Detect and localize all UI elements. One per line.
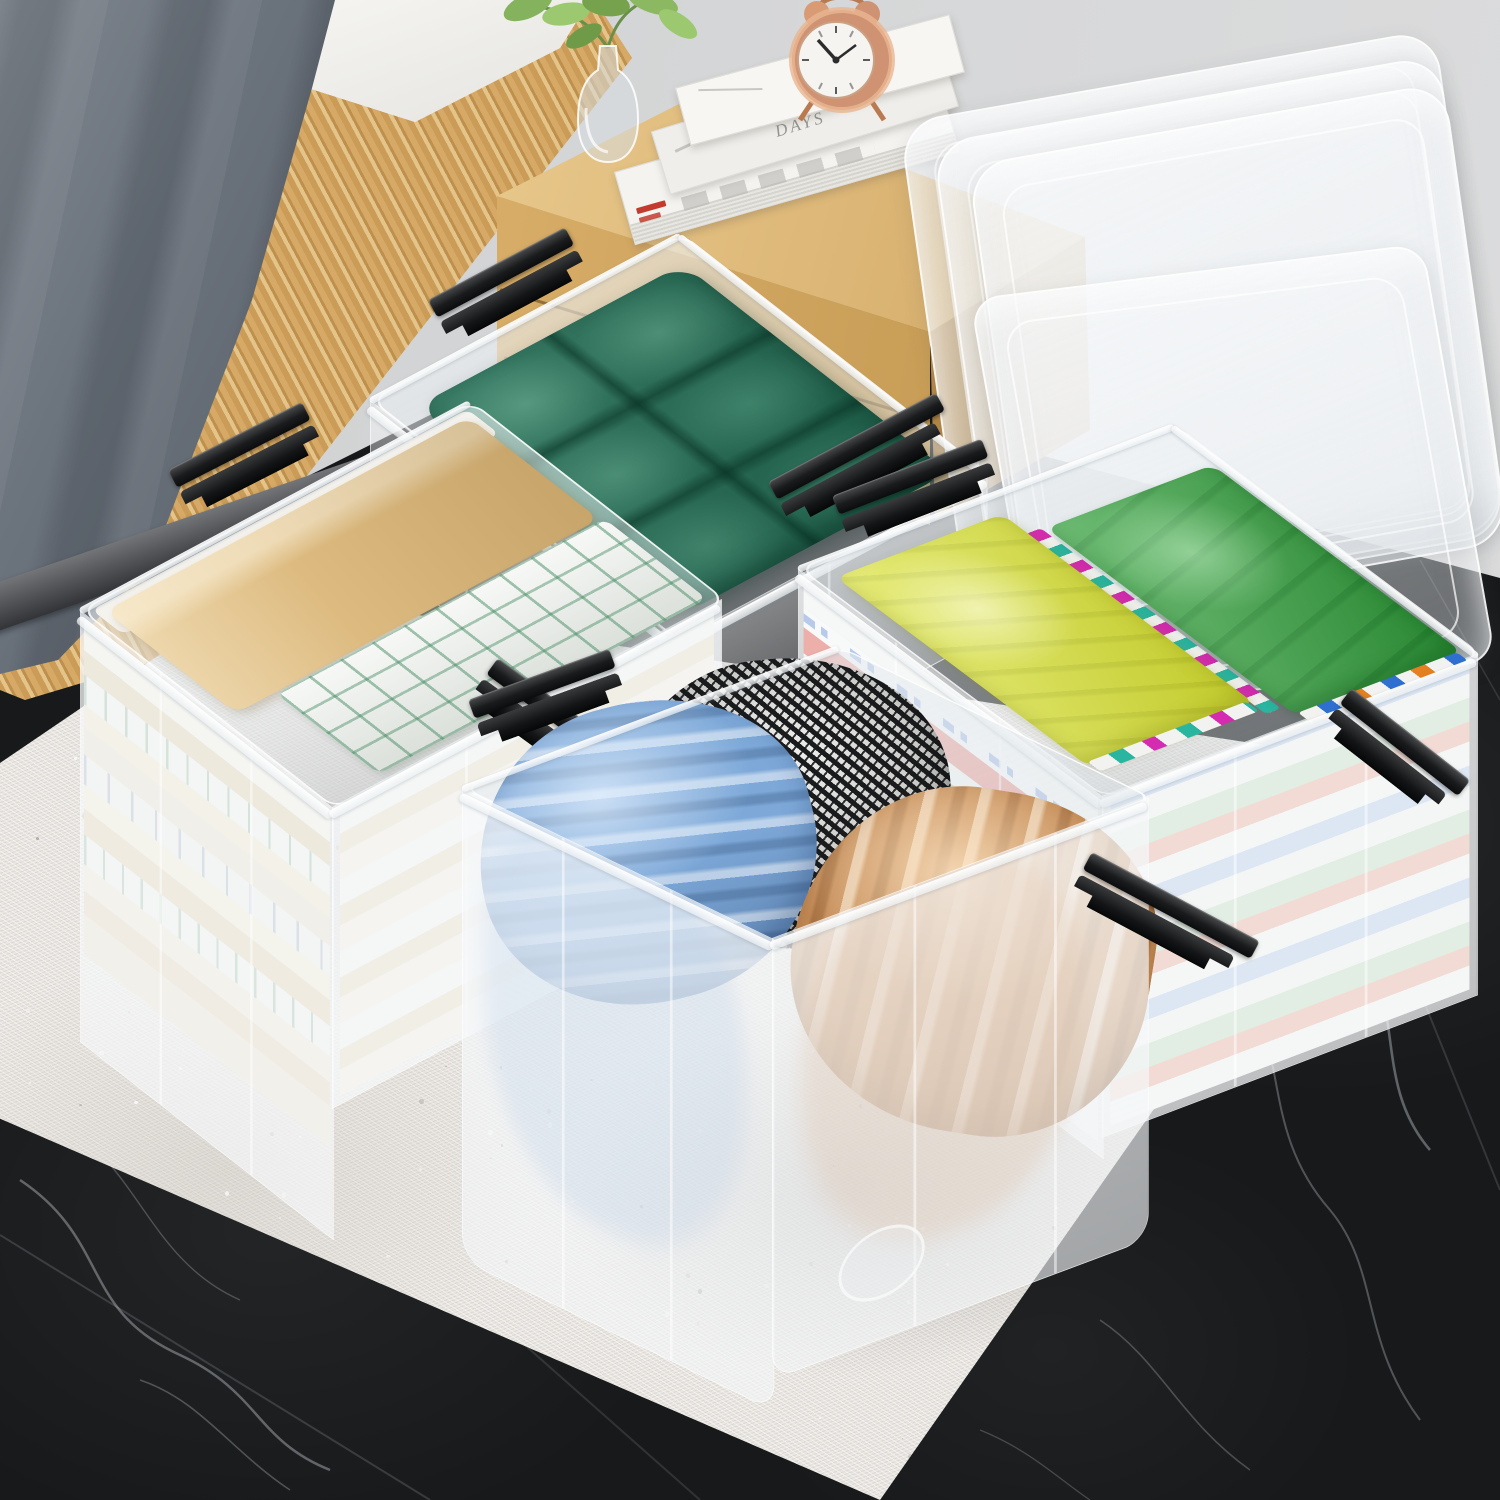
rug-speckle <box>386 1255 390 1259</box>
bedroom-storage-bins-photo: DAYS <box>0 0 1500 1500</box>
book-sketch-line2 <box>698 88 762 91</box>
rug-speckle <box>419 1168 422 1171</box>
book-accent-mark <box>636 200 666 214</box>
binC-ridge3 <box>1234 746 1237 1087</box>
binB-ridge2 <box>250 744 252 1176</box>
clock-handle <box>820 0 864 6</box>
binD-ridge2 <box>670 890 673 1361</box>
binD-ridge <box>562 837 565 1308</box>
clock-leg-right <box>872 102 884 120</box>
rug-speckle <box>225 1191 229 1196</box>
alarm-clock <box>772 0 912 130</box>
clock-leg-left <box>800 102 812 120</box>
binB-ridge <box>160 673 162 1105</box>
binD-ridge4 <box>1054 833 1057 1274</box>
rug-speckle <box>134 1101 138 1104</box>
rug-speckle <box>79 1104 82 1106</box>
rug-speckle <box>279 1217 281 1218</box>
